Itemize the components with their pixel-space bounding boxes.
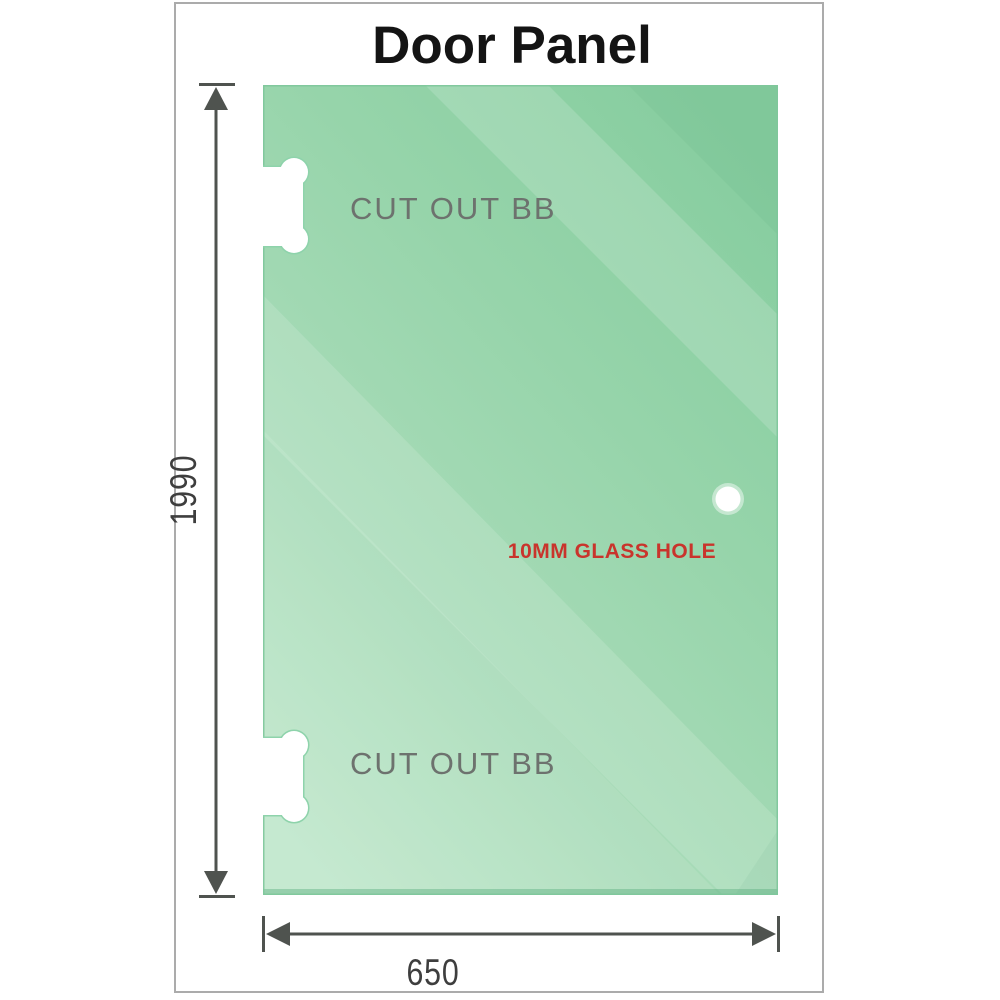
cutout-bottom-label: CUT OUT BB <box>350 747 557 781</box>
height-dimension-line <box>199 83 235 898</box>
cutout-top-label: CUT OUT BB <box>350 192 557 226</box>
glass-hole <box>712 483 744 515</box>
glass-hole-label: 10MM GLASS HOLE <box>502 540 722 564</box>
dimension-arrow-down-icon <box>204 871 228 894</box>
dimension-arrow-right-icon <box>752 922 776 946</box>
height-dimension-value: 1990 <box>165 449 203 531</box>
panel-drawing <box>0 0 1000 1000</box>
dimension-tick <box>777 916 780 952</box>
dimension-line <box>215 100 218 880</box>
dimension-line <box>282 933 760 936</box>
product-diagram: Door Panel CUT OUT BB CUT OUT BB 10MM GL… <box>0 0 1000 1000</box>
hinge-cutout-bottom <box>240 731 308 822</box>
page-title: Door Panel <box>174 15 850 76</box>
width-dimension-line <box>262 916 780 952</box>
dimension-cap <box>199 895 235 898</box>
dimension-cap <box>199 83 235 86</box>
width-dimension-value: 650 <box>384 954 482 992</box>
dimension-tick <box>262 916 265 952</box>
hinge-cutout-top <box>240 158 308 253</box>
